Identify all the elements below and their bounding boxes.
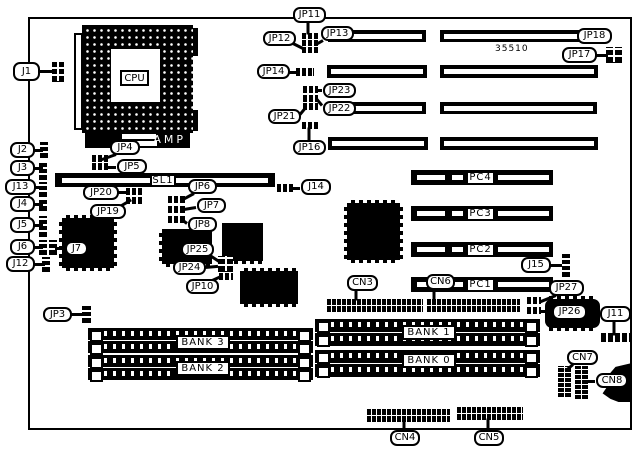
callout-pc3: PC3 (466, 207, 495, 221)
jp11-jumper-a (302, 33, 318, 39)
callout-jp16: JP16 (293, 140, 326, 155)
callout-j12: J12 (6, 256, 35, 272)
callout-j15-text: J15 (528, 260, 544, 270)
isa-slot-2-right (440, 65, 598, 78)
simm-bank0-b-capR (525, 366, 538, 378)
qfp-chip-1-pin (113, 238, 117, 242)
callout-j4-text: J4 (18, 199, 27, 209)
callout-j5-text: J5 (18, 220, 27, 230)
qfp-chip-5-pin (344, 247, 348, 251)
cn4-header (367, 408, 450, 422)
callout-j6: J6 (10, 239, 35, 255)
qfp-chip-5-pin (391, 259, 395, 263)
amp-bar-stripe (122, 134, 156, 139)
cn3-pointer (355, 290, 358, 300)
isa-slot-1-right (440, 30, 598, 42)
callout-jp24-text: JP24 (179, 263, 201, 273)
callout-jp6-text: JP6 (195, 182, 210, 192)
chip-4-pin (252, 268, 256, 272)
qfp-chip-1-pin (66, 215, 70, 219)
callout-j13-text: J13 (13, 182, 29, 192)
callout-cn5-text: CN5 (479, 433, 500, 443)
callout-jp14-text: JP14 (263, 67, 285, 77)
chip-6-pin (565, 327, 569, 331)
chip-6-pin (589, 327, 593, 331)
chip-4-pin (252, 303, 256, 307)
jp14-jumper (296, 68, 314, 76)
cn5-pointer (487, 418, 490, 429)
qfp-chip-1-pin (106, 267, 110, 271)
qfp-chip-1-pin (59, 238, 63, 242)
isa-slot-1-right-key (444, 34, 594, 39)
j15-pointer (550, 264, 562, 267)
simm-bank1-b-capL (317, 335, 330, 347)
simm-bank1-a-capR (525, 321, 538, 333)
chip-6-pin (565, 296, 569, 300)
callout-jp4: JP4 (110, 140, 140, 155)
callout-j14: J14 (301, 179, 331, 195)
isa-slot-4-right (440, 137, 598, 150)
callout-j14-text: J14 (308, 182, 324, 192)
qfp-chip-5-pin (359, 259, 363, 263)
chip-4-pin (268, 268, 272, 272)
qfp-chip-5-pin (344, 231, 348, 235)
callout-bank2-text: BANK 2 (181, 364, 224, 374)
jp3-pointer (71, 313, 83, 316)
callout-pc2-text: PC2 (469, 245, 491, 255)
chip-4-pin (292, 303, 296, 307)
qfp-chip-5-pin (344, 215, 348, 219)
callout-j2: J2 (10, 142, 35, 158)
callout-cn8: CN8 (596, 373, 628, 388)
qfp-chip-2-pin (159, 233, 163, 237)
callout-j13: J13 (5, 179, 36, 195)
chip-4-pin (260, 268, 264, 272)
callout-jp6: JP6 (188, 179, 217, 194)
callout-j2-text: J2 (18, 145, 27, 155)
callout-jp16-text: JP16 (299, 143, 321, 153)
qfp-chip-5-pin (399, 231, 403, 235)
pci-slot-pc2-key (417, 247, 445, 252)
qfp-chip-1-pin (82, 267, 86, 271)
callout-pc1-text: PC1 (469, 280, 491, 290)
callout-bank1: BANK 1 (402, 325, 456, 340)
callout-jp20: JP20 (83, 185, 119, 200)
callout-jp5: JP5 (117, 159, 147, 174)
qfp-chip-1-pin (113, 262, 117, 266)
callout-jp24: JP24 (173, 260, 206, 275)
qfp-chip-5-pin (344, 239, 348, 243)
callout-pc2: PC2 (466, 243, 495, 257)
simm-bank3-b-capL (90, 343, 103, 355)
chip-3-pin (250, 260, 254, 264)
callout-jp11-text: JP11 (299, 10, 321, 20)
chip-3-pin (242, 260, 246, 264)
callout-jp21-text: JP21 (274, 112, 296, 122)
qfp-chip-5-pin (399, 239, 403, 243)
qfp-chip-1-pin (113, 254, 117, 258)
qfp-chip-5-pin (359, 200, 363, 204)
callout-cn6-text: CN6 (430, 277, 451, 287)
callout-jp3: JP3 (43, 307, 72, 322)
chip-4-pin (244, 303, 248, 307)
jp16-pointer (308, 127, 311, 141)
callout-jp8-text: JP8 (195, 220, 210, 230)
chip-6-pin (557, 296, 561, 300)
callout-sl1: SL1 (150, 174, 176, 187)
chip-6-pin (549, 327, 553, 331)
j4-pointer (34, 203, 43, 206)
cpu-socket-tab-top (193, 28, 198, 56)
isa-slot-4-left (328, 137, 428, 150)
pci-slot-pc3-key (498, 211, 549, 216)
jp17-jumper (606, 47, 622, 63)
jp27-jumper-b (527, 307, 541, 314)
qfp-chip-1-pin (66, 267, 70, 271)
callout-jp25: JP25 (181, 242, 214, 257)
j13-pointer (35, 186, 43, 189)
qfp-chip-2-pin (159, 257, 163, 261)
chip-4-pin (284, 303, 288, 307)
j3-pointer (34, 167, 43, 170)
callout-cn4-text: CN4 (395, 433, 416, 443)
pci-slot-pc1-key (498, 282, 549, 287)
j1-pointer (40, 70, 55, 73)
j5-pointer (34, 224, 43, 227)
qfp-chip-2-pin (166, 263, 170, 267)
callout-bank1-text: BANK 1 (407, 328, 450, 338)
cpu-label: CPU (120, 70, 149, 86)
callout-jp12: JP12 (263, 31, 296, 46)
simm-bank2-b-capR (298, 370, 311, 382)
j3-jumper (39, 161, 47, 180)
callout-jp4-text: JP4 (117, 143, 132, 153)
callout-bank0: BANK 0 (402, 353, 456, 368)
callout-jp19: JP19 (90, 204, 126, 219)
isa-slot-4-right-key (444, 141, 594, 146)
callout-sl1-text: SL1 (152, 176, 173, 186)
isa-slot-3-right-key (444, 106, 593, 111)
cn8-pointer (587, 380, 595, 383)
callout-jp21: JP21 (268, 109, 301, 124)
callout-jp7: JP7 (197, 198, 226, 213)
callout-cn7: CN7 (567, 350, 598, 365)
cn6-pointer (433, 289, 436, 300)
callout-jp17-text: JP17 (569, 50, 591, 60)
simm-bank1-b-capR (525, 335, 538, 347)
callout-jp13-text: JP13 (327, 29, 349, 39)
cn4-pointer (403, 420, 406, 429)
qfp-chip-1-pin (59, 262, 63, 266)
callout-j4: J4 (10, 196, 35, 212)
callout-bank3-text: BANK 3 (181, 338, 224, 348)
qfp-chip-2-pin (159, 241, 163, 245)
callout-j7-text: J7 (72, 244, 81, 254)
isa-slot-2-right-key (444, 69, 594, 74)
qfp-chip-1-pin (113, 230, 117, 234)
chip-4-pin (284, 268, 288, 272)
callout-bank2: BANK 2 (176, 361, 230, 376)
chip-4-pin (268, 303, 272, 307)
chip-3-pin (258, 260, 262, 264)
simm-bank3-b-capR (298, 343, 311, 355)
callout-jp25-text: JP25 (187, 245, 209, 255)
chip-4-pin (260, 303, 264, 307)
qfp-chip-1-pin (74, 267, 78, 271)
pci-slot-pc4-key (417, 175, 445, 180)
pci-slot-pc4-key (452, 175, 463, 180)
pci-slot-pc3-key (452, 211, 463, 216)
chip-4-pin (276, 268, 280, 272)
jp24-pointer (205, 264, 218, 268)
chip-4 (240, 271, 298, 304)
j15-jumper (562, 252, 570, 277)
callout-bank3: BANK 3 (176, 335, 230, 350)
jp26-pointer (541, 310, 551, 313)
simm-bank0-b-capL (317, 366, 330, 378)
callout-j3: J3 (10, 160, 35, 176)
cpu-socket-tab-bottom (193, 110, 198, 131)
callout-jp18-text: JP18 (584, 31, 606, 41)
qfp-chip-1-pin (90, 267, 94, 271)
pci-slot-pc2-key (498, 247, 549, 252)
j5-jumper (39, 216, 47, 237)
callout-jp7-text: JP7 (204, 201, 219, 211)
callout-jp27: JP27 (549, 280, 584, 296)
callout-jp8: JP8 (188, 217, 217, 232)
callout-jp14: JP14 (257, 64, 290, 79)
jp17-pointer (596, 54, 608, 57)
j12-pointer (34, 263, 45, 266)
qfp-chip-5-pin (367, 200, 371, 204)
qfp-chip-1-pin (82, 215, 86, 219)
jp5-pointer (106, 166, 116, 169)
callout-jp23-text: JP23 (329, 86, 351, 96)
amp-brand-text: AMP (153, 133, 186, 146)
callout-jp23: JP23 (323, 83, 356, 98)
callout-jp26-text: JP26 (559, 307, 581, 317)
cn5-header (457, 406, 523, 420)
qfp-chip-1-pin (98, 267, 102, 271)
callout-jp11: JP11 (293, 7, 326, 23)
chip-6-pin (581, 327, 585, 331)
chip-6-pin (589, 296, 593, 300)
chip-6-pin (557, 327, 561, 331)
callout-jp5-text: JP5 (124, 162, 139, 172)
pci-slot-pc3-key (417, 211, 445, 216)
qfp-chip-1-pin (59, 230, 63, 234)
qfp-chip-5-pin (344, 255, 348, 259)
j11-pointer (613, 321, 616, 335)
simm-bank0-a-capR (525, 352, 538, 364)
callout-jp10-text: JP10 (192, 282, 214, 292)
jp20-jumper (126, 188, 142, 195)
qfp-chip-2-pin (159, 249, 163, 253)
cpu-socket-lever-slot (74, 33, 83, 130)
qfp-chip-5-pin (351, 259, 355, 263)
qfp-chip-1-pin (59, 254, 63, 258)
qfp-chip-5-pin (383, 200, 387, 204)
board-code-text: 35510 (495, 44, 529, 54)
callout-j5: J5 (10, 217, 35, 233)
qfp-chip-5-pin (383, 259, 387, 263)
callout-j12-text: J12 (13, 259, 29, 269)
callout-cn5: CN5 (474, 430, 504, 446)
pci-slot-pc4-key (498, 175, 549, 180)
qfp-chip-5-pin (399, 215, 403, 219)
callout-cn3: CN3 (347, 275, 378, 291)
chip-6-pin (573, 327, 577, 331)
cn3-header (327, 298, 423, 312)
simm-bank0-a-capL (317, 352, 330, 364)
j14-pointer (291, 187, 300, 190)
simm-bank2-b-capL (90, 370, 103, 382)
callout-jp12-text: JP12 (269, 34, 291, 44)
qfp-chip-5-pin (351, 200, 355, 204)
motherboard-diagram: CPU AMP 35510 J1J2J3J13J4J5J6J12J7JP4JP5… (0, 0, 635, 450)
callout-jp18: JP18 (577, 28, 612, 44)
j13-jumper (39, 182, 47, 197)
callout-bank0-text: BANK 0 (407, 356, 450, 366)
jp23-pointer (316, 89, 322, 92)
callout-jp3-text: JP3 (50, 310, 65, 320)
callout-cn4: CN4 (390, 430, 420, 446)
qfp-chip-5 (347, 203, 400, 260)
callout-jp22: JP22 (323, 101, 356, 116)
callout-j6-text: J6 (18, 242, 27, 252)
callout-jp13: JP13 (321, 26, 354, 41)
j11-header (601, 333, 631, 342)
jp3-jumper (82, 306, 91, 323)
callout-jp10: JP10 (186, 279, 219, 294)
jp14-pointer (289, 71, 298, 74)
pci-slot-pc2-key (452, 247, 463, 252)
chip-4-pin (276, 303, 280, 307)
isa-slot-3-right (440, 102, 597, 114)
j6-pointer (34, 246, 43, 249)
jp24-jp25-block (218, 256, 233, 272)
callout-j15: J15 (521, 257, 551, 273)
cn6-header (427, 298, 520, 312)
callout-jp19-text: JP19 (97, 207, 119, 217)
callout-j3-text: J3 (18, 163, 27, 173)
callout-j1-text: J1 (22, 67, 31, 77)
qfp-chip-5-pin (399, 247, 403, 251)
jp11-pointer (307, 22, 310, 34)
qfp-chip-1-pin (113, 246, 117, 250)
callout-jp26: JP26 (552, 304, 587, 320)
callout-j7: J7 (65, 241, 88, 256)
j2-pointer (34, 149, 43, 152)
callout-jp27-text: JP27 (556, 283, 578, 293)
qfp-chip-1-pin (113, 222, 117, 226)
callout-pc3-text: PC3 (469, 209, 491, 219)
callout-jp22-text: JP22 (329, 104, 351, 114)
callout-j11-text: J11 (608, 309, 624, 319)
callout-cn8-text: CN8 (602, 376, 623, 386)
callout-j11: J11 (600, 306, 631, 322)
qfp-chip-5-pin (399, 223, 403, 227)
j7-pointer (55, 247, 64, 250)
qfp-chip-5-pin (375, 200, 379, 204)
callout-jp17: JP17 (562, 47, 597, 63)
qfp-chip-5-pin (391, 200, 395, 204)
chip-6-pin (573, 296, 577, 300)
callout-j1: J1 (13, 62, 40, 81)
chip-3-pin (234, 260, 238, 264)
isa-slot-2-left-key (331, 69, 423, 74)
isa-slot-4-left-key (332, 141, 424, 146)
qfp-chip-5-pin (375, 259, 379, 263)
isa-slot-2-left (327, 65, 427, 78)
qfp-chip-5-pin (399, 255, 403, 259)
callout-cn6: CN6 (426, 274, 455, 290)
chip-4-pin (292, 268, 296, 272)
callout-pc1: PC1 (466, 278, 495, 292)
qfp-chip-5-pin (367, 259, 371, 263)
callout-cn3-text: CN3 (352, 278, 373, 288)
qfp-chip-5-pin (344, 207, 348, 211)
callout-jp20-text: JP20 (90, 188, 112, 198)
chip-6-pin (581, 296, 585, 300)
simm-bank1-a-capL (317, 321, 330, 333)
qfp-chip-5-pin (344, 223, 348, 227)
qfp-chip-1-pin (74, 215, 78, 219)
callout-pc4: PC4 (466, 171, 495, 185)
callout-cn7-text: CN7 (572, 353, 593, 363)
callout-pc4-text: PC4 (469, 173, 491, 183)
qfp-chip-5-pin (399, 207, 403, 211)
qfp-chip-1-pin (59, 222, 63, 226)
jp20-pointer (118, 191, 128, 194)
chip-4-pin (244, 268, 248, 272)
